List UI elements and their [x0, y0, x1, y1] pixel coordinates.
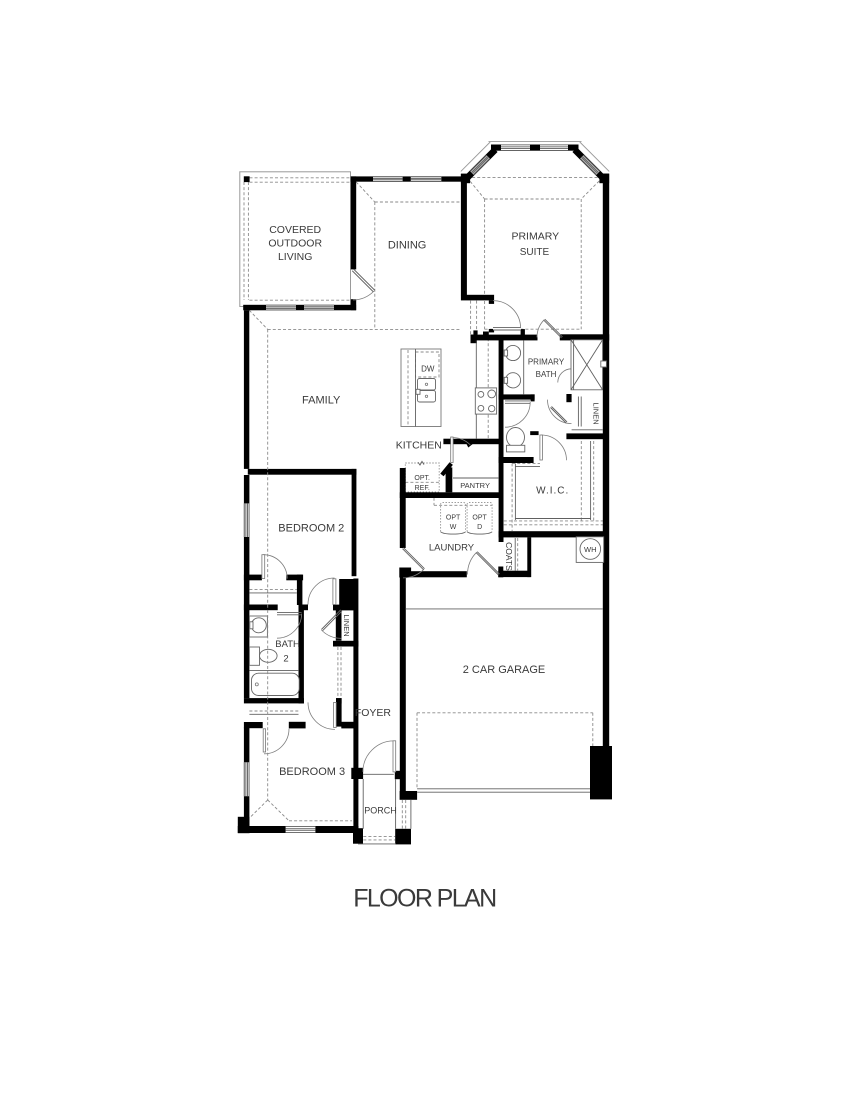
svg-text:BATH: BATH — [536, 370, 557, 379]
svg-text:PANTRY: PANTRY — [460, 481, 490, 490]
svg-text:BEDROOM 2: BEDROOM 2 — [278, 523, 344, 535]
svg-text:REF.: REF. — [415, 485, 430, 492]
svg-text:W.I.C.: W.I.C. — [536, 485, 569, 496]
svg-text:OUTDOOR: OUTDOOR — [268, 238, 322, 250]
svg-text:LINEN: LINEN — [592, 403, 601, 425]
svg-text:OPT: OPT — [472, 515, 487, 522]
svg-text:PORCH: PORCH — [364, 805, 397, 815]
svg-text:D: D — [477, 524, 482, 531]
svg-text:OPT.: OPT. — [414, 475, 430, 482]
svg-text:FLOOR PLAN: FLOOR PLAN — [353, 885, 496, 913]
svg-text:FAMILY: FAMILY — [302, 394, 341, 406]
svg-text:DINING: DINING — [388, 239, 427, 251]
svg-text:BEDROOM 3: BEDROOM 3 — [279, 766, 345, 778]
svg-text:LINEN: LINEN — [342, 615, 351, 637]
svg-text:PRIMARY: PRIMARY — [511, 230, 559, 242]
svg-text:SUITE: SUITE — [520, 247, 550, 258]
svg-text:LIVING: LIVING — [278, 251, 312, 263]
svg-text:COATS: COATS — [504, 542, 514, 571]
svg-text:2: 2 — [283, 653, 288, 664]
svg-text:2 CAR GARAGE: 2 CAR GARAGE — [463, 664, 546, 676]
svg-text:BATH: BATH — [275, 639, 300, 650]
svg-text:WH: WH — [584, 545, 597, 554]
svg-text:DW: DW — [421, 364, 435, 373]
svg-text:LAUNDRY: LAUNDRY — [429, 543, 475, 554]
svg-text:KITCHEN: KITCHEN — [396, 440, 442, 452]
svg-text:FOYER: FOYER — [355, 707, 392, 719]
svg-text:W: W — [450, 524, 457, 531]
svg-text:PRIMARY: PRIMARY — [528, 357, 565, 366]
svg-text:COVERED: COVERED — [269, 224, 321, 236]
svg-text:OPT: OPT — [446, 515, 461, 522]
